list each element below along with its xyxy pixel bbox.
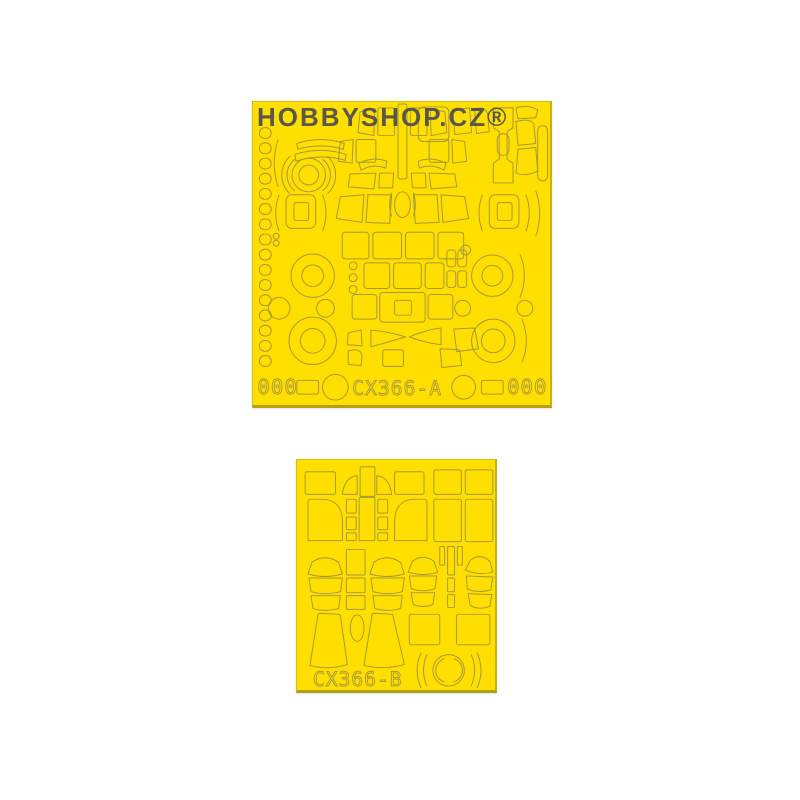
- bottom-row-cutouts: 000 CX366-A 000: [257, 374, 547, 400]
- mask-sheet-a: 000 CX366-A 000: [252, 101, 552, 408]
- mask-sheet-a-shapes: 000 CX366-A 000: [253, 102, 550, 405]
- sheet-a-code-text: CX366-A: [352, 377, 442, 400]
- watermark-text: HOBBYSHOP.CZ®: [257, 102, 508, 133]
- bracket-square-masks-left: [276, 195, 326, 232]
- canopy-masks-top-b: [305, 467, 493, 542]
- mask-sheet-b-shapes: CX366-B: [297, 460, 495, 690]
- zeros-left-text: 000: [257, 375, 297, 399]
- strip-masks-column: [259, 128, 279, 367]
- masks-bottom-b: [310, 613, 490, 667]
- mask-sheet-b: CX366-B: [296, 459, 497, 693]
- wheel-mask-top-left: [274, 140, 346, 194]
- sheet-b-code-text: CX366-B: [313, 668, 403, 690]
- window-rect-masks-center: [342, 232, 466, 322]
- wheel-masks-left: [268, 254, 336, 365]
- small-masks-bottom: [347, 328, 478, 367]
- zeros-right-text: 000: [507, 375, 547, 399]
- spinner-mask: [417, 653, 481, 688]
- product-photo: HOBBYSHOP.CZ®: [0, 0, 800, 800]
- fan-masks-middle-b: [308, 546, 493, 610]
- bracket-square-masks-right: [479, 191, 540, 236]
